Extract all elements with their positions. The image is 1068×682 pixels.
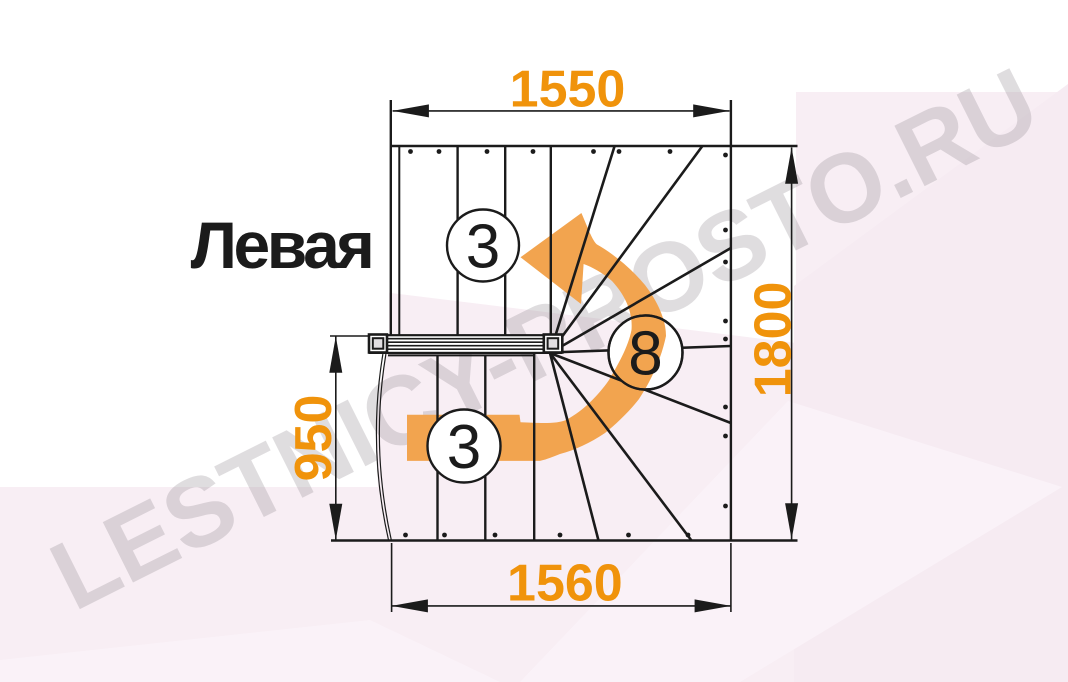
svg-text:1560: 1560 [507, 555, 623, 613]
svg-text:950: 950 [285, 395, 343, 482]
svg-text:3: 3 [447, 413, 481, 482]
svg-text:Левая: Левая [191, 208, 372, 282]
svg-text:1800: 1800 [745, 282, 803, 398]
svg-text:3: 3 [466, 213, 500, 282]
svg-text:1550: 1550 [510, 61, 626, 119]
svg-text:8: 8 [628, 320, 662, 389]
